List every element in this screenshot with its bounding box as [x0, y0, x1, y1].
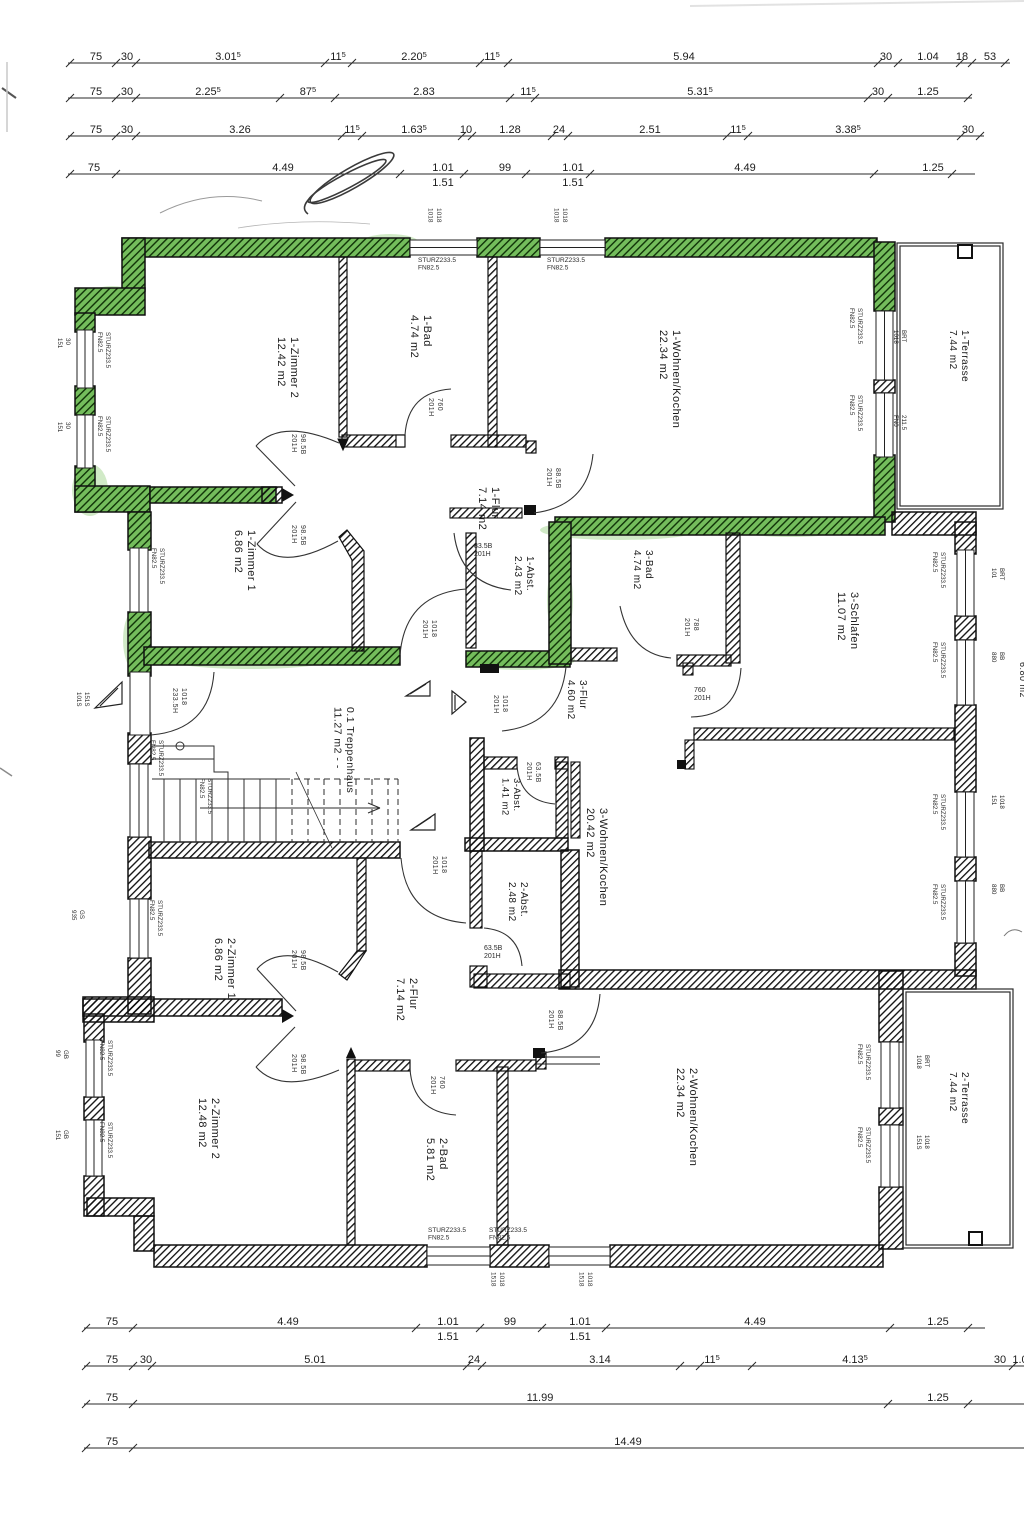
svg-text:30: 30 — [121, 51, 133, 63]
svg-text:1.51: 1.51 — [569, 1331, 590, 1343]
svg-text:10181518: 10181518 — [578, 1272, 594, 1287]
svg-text:1.51: 1.51 — [562, 177, 583, 189]
svg-text:1018151S: 1018151S — [915, 1135, 930, 1149]
svg-text:2.83: 2.83 — [413, 86, 434, 98]
svg-text:75: 75 — [106, 1392, 118, 1404]
svg-text:1.04: 1.04 — [917, 51, 938, 63]
svg-text:24: 24 — [553, 124, 565, 136]
svg-text:10181518: 10181518 — [490, 1272, 506, 1287]
svg-text:3-Abst.1.41 m2: 3-Abst.1.41 m2 — [500, 778, 523, 816]
svg-text:1.51: 1.51 — [437, 1331, 458, 1343]
svg-text:75: 75 — [90, 51, 102, 63]
svg-text:75: 75 — [106, 1316, 118, 1328]
svg-text:151S101S: 151S101S — [75, 692, 90, 706]
svg-text:30: 30 — [880, 51, 892, 63]
svg-text:6.80 m2: 6.80 m2 — [1018, 662, 1024, 698]
svg-text:5.01: 5.01 — [304, 1354, 325, 1366]
svg-text:3-Schlafen11.07 m2: 3-Schlafen11.07 m2 — [835, 592, 860, 650]
svg-text:30: 30 — [121, 86, 133, 98]
svg-text:4.49: 4.49 — [734, 162, 755, 174]
svg-text:14.49: 14.49 — [614, 1436, 642, 1448]
svg-text:1.01: 1.01 — [562, 162, 583, 174]
svg-text:3.26: 3.26 — [229, 124, 250, 136]
svg-text:1.25: 1.25 — [922, 162, 943, 174]
svg-text:3.14: 3.14 — [589, 1354, 610, 1366]
svg-text:11.99: 11.99 — [527, 1392, 554, 1404]
svg-text:30: 30 — [121, 124, 133, 136]
svg-text:1.25: 1.25 — [927, 1392, 948, 1404]
svg-text:2-Abst.2.48 m2: 2-Abst.2.48 m2 — [506, 882, 529, 922]
svg-text:1.01: 1.01 — [437, 1316, 458, 1328]
svg-text:1.28: 1.28 — [499, 124, 520, 136]
svg-text:83.5B201H: 83.5B201H — [474, 543, 493, 558]
svg-text:75: 75 — [106, 1436, 118, 1448]
svg-text:75: 75 — [88, 162, 100, 174]
svg-text:4.49: 4.49 — [744, 1316, 765, 1328]
svg-text:99: 99 — [504, 1316, 516, 1328]
svg-text:1.25: 1.25 — [927, 1316, 948, 1328]
svg-text:4.49: 4.49 — [277, 1316, 298, 1328]
svg-text:1-Abst.2.43 m2: 1-Abst.2.43 m2 — [512, 556, 535, 596]
svg-text:53: 53 — [984, 51, 996, 63]
svg-text:1.01: 1.01 — [432, 162, 453, 174]
svg-text:99: 99 — [499, 162, 511, 174]
svg-text:75: 75 — [90, 86, 102, 98]
svg-text:10181018: 10181018 — [553, 208, 569, 223]
svg-text:5.94: 5.94 — [673, 51, 694, 63]
svg-text:24: 24 — [468, 1354, 480, 1366]
svg-text:75: 75 — [106, 1354, 118, 1366]
svg-text:BRT1018: BRT1018 — [915, 1055, 930, 1069]
svg-text:1.0: 1.0 — [1012, 1354, 1024, 1366]
svg-text:10: 10 — [460, 124, 472, 136]
svg-text:18: 18 — [956, 51, 968, 63]
svg-text:1.51: 1.51 — [432, 177, 453, 189]
svg-text:1.01: 1.01 — [569, 1316, 590, 1328]
svg-text:10181018: 10181018 — [427, 208, 443, 223]
svg-text:30: 30 — [962, 124, 974, 136]
svg-text:BRT1018: BRT1018 — [892, 330, 907, 344]
svg-text:75: 75 — [90, 124, 102, 136]
svg-text:30: 30 — [140, 1354, 152, 1366]
svg-text:1.25: 1.25 — [917, 86, 938, 98]
svg-text:30: 30 — [872, 86, 884, 98]
svg-text:4.49: 4.49 — [272, 162, 293, 174]
svg-text:30: 30 — [994, 1354, 1006, 1366]
svg-text:2.51: 2.51 — [639, 124, 660, 136]
svg-text:63.5B201H: 63.5B201H — [484, 945, 503, 960]
